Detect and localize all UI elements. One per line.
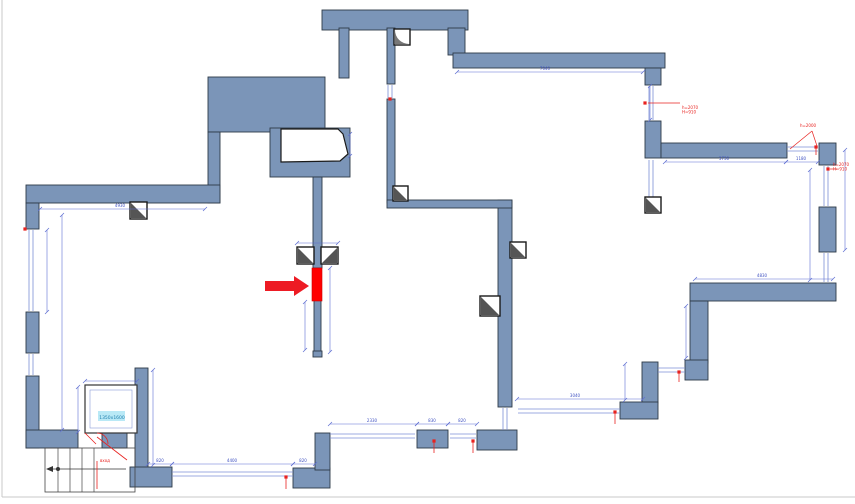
dimension-label: 820	[156, 458, 164, 463]
red-note: h=2000	[800, 123, 817, 128]
wall-segment	[322, 10, 468, 30]
dimension-label: 4930	[115, 203, 126, 208]
dimension-label: 3040	[570, 393, 581, 398]
dimension-label: 4400	[227, 458, 238, 463]
wall-segment	[315, 433, 330, 470]
wall-segment	[642, 362, 658, 403]
dimension-label: 4830	[757, 273, 768, 278]
wall-segment	[690, 283, 836, 301]
wall-segment	[453, 53, 665, 68]
wall-segment	[314, 300, 321, 352]
wall-segment	[293, 468, 330, 488]
stair-start-dot	[56, 467, 60, 471]
red-leader-line	[812, 131, 817, 146]
dimension-label: 820	[299, 458, 307, 463]
wall-segment	[339, 28, 349, 78]
red-level-marker	[388, 97, 391, 100]
dimension-label: 820	[458, 418, 466, 423]
wall-segment	[819, 207, 836, 252]
highlight-wall-segment	[312, 268, 322, 301]
wall-segment	[26, 185, 220, 203]
wall-segment	[26, 312, 39, 353]
red-note: вход	[100, 458, 110, 463]
wall-segment	[645, 121, 661, 158]
wall-niche	[281, 129, 348, 162]
wall-segment	[26, 203, 39, 229]
wall-segment	[645, 68, 661, 85]
dimension-label: 7040	[540, 66, 551, 71]
annotation-arrow-icon	[265, 276, 309, 296]
wall-segment	[130, 467, 172, 487]
dimension-label: 1180	[796, 156, 807, 161]
wall-segment	[417, 430, 448, 448]
dimension-label: 3730	[719, 156, 730, 161]
dimension-label: 2330	[367, 418, 378, 423]
wall-segment	[26, 430, 78, 448]
wall-segment	[208, 77, 325, 132]
wall-segment	[477, 430, 517, 450]
red-level-marker	[23, 227, 26, 230]
elevator-size-label: 1350x1600	[99, 415, 125, 421]
red-note: h=2070H=910	[833, 162, 850, 172]
floor-plan-canvas[interactable]: 7040373011804830304049308204400820233083…	[0, 0, 855, 504]
red-leader-line	[790, 131, 812, 149]
red-level-marker	[643, 101, 646, 104]
stair-direction-arrow-icon	[46, 466, 53, 472]
red-note: h=2070H=910	[682, 105, 699, 115]
dimension-label: 830	[428, 418, 436, 423]
door-swing-line	[85, 433, 96, 444]
red-level-marker	[826, 167, 829, 170]
wall-segment	[620, 402, 658, 419]
wall-segment	[313, 351, 322, 357]
wall-segment	[690, 301, 708, 363]
elevator-room	[85, 385, 137, 433]
floor-plan-drawing: 7040373011804830304049308204400820233083…	[0, 0, 855, 504]
wall-segment	[685, 360, 708, 380]
wall-segment	[448, 28, 465, 55]
